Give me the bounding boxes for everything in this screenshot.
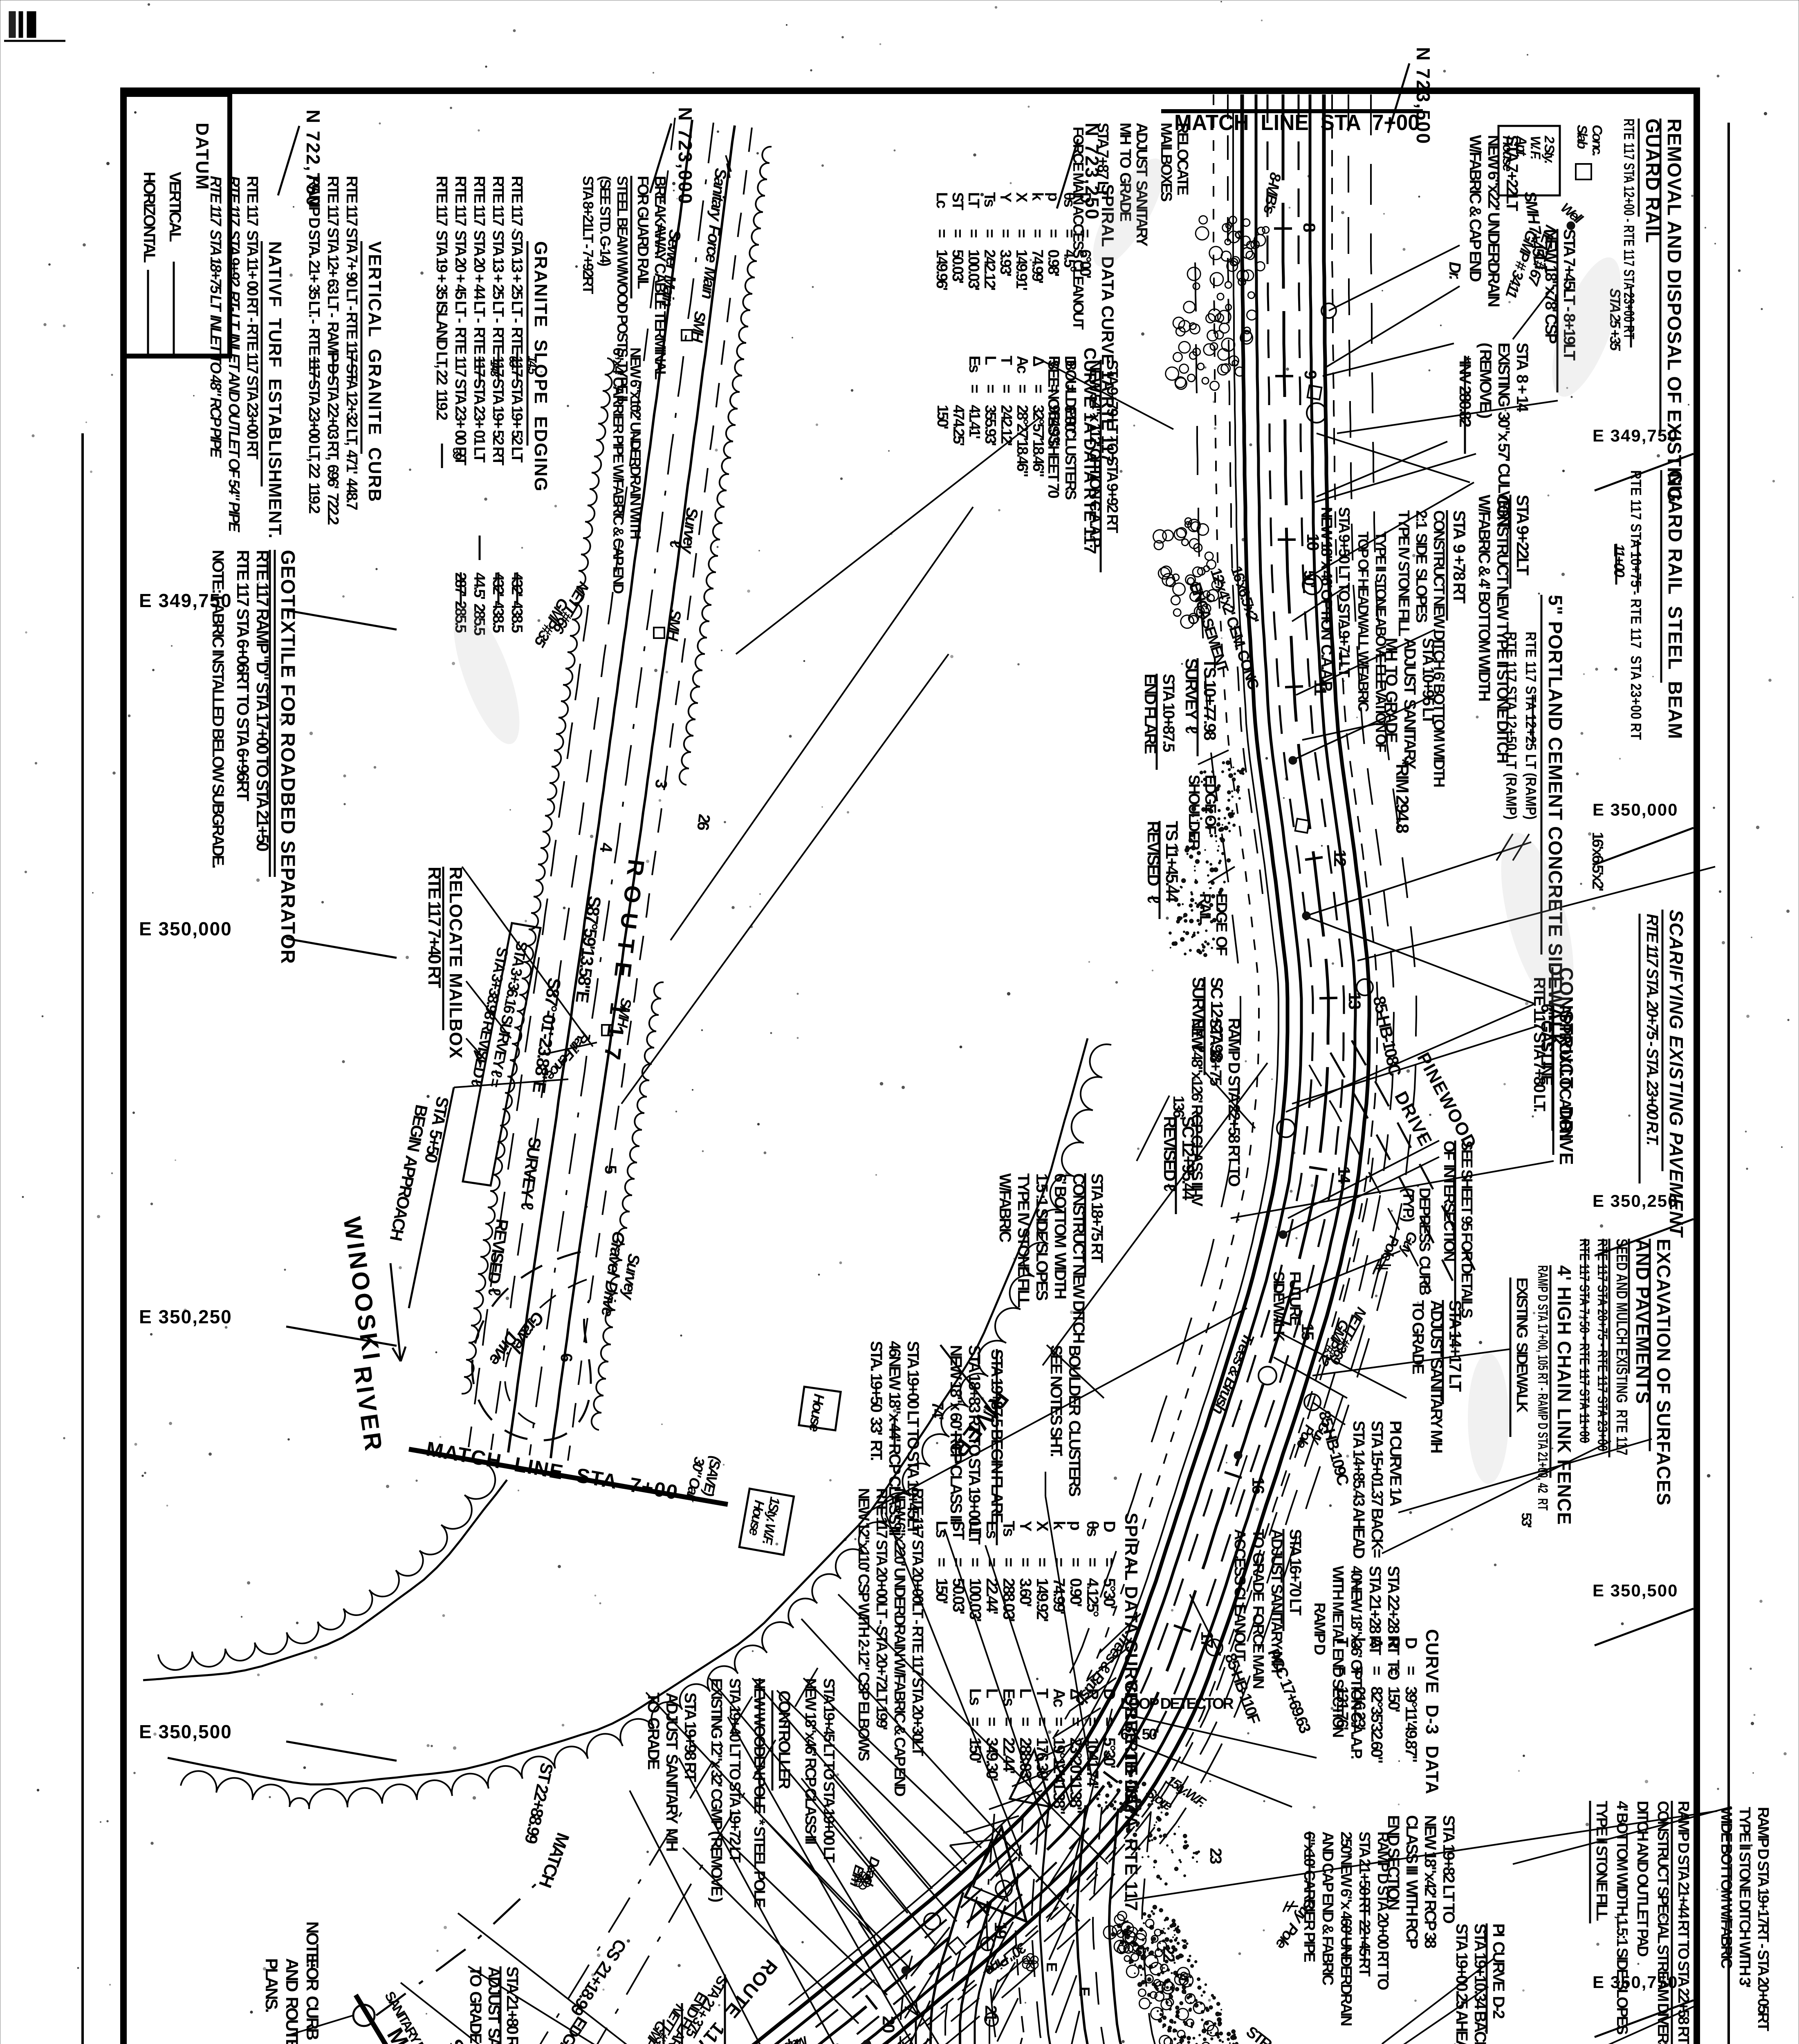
svg-text:6' BOTTOM WIDTH: 6' BOTTOM WIDTH xyxy=(1051,1173,1069,1299)
svg-text:TO GRADE: TO GRADE xyxy=(644,1692,662,1770)
svg-text:STA 8 + 14: STA 8 + 14 xyxy=(1513,343,1531,412)
svg-text:SCARIFYING EXISTING PAVEMENT: SCARIFYING EXISTING PAVEMENT xyxy=(1666,910,1687,1238)
svg-text:p: p xyxy=(1067,1521,1085,1530)
svg-text:MATCH LINE STA 7+00: MATCH LINE STA 7+00 xyxy=(1174,110,1420,135)
svg-text:39°11'49.87": 39°11'49.87" xyxy=(1402,1686,1420,1762)
svg-text:4' HIGH CHAIN LINK FENCE: 4' HIGH CHAIN LINK FENCE xyxy=(1554,1265,1575,1525)
svg-text:STA 19+82 LT TO: STA 19+82 LT TO xyxy=(1440,1815,1458,1923)
svg-text:( REMOVE ): ( REMOVE ) xyxy=(1476,343,1494,418)
svg-text:41.41': 41.41' xyxy=(966,405,983,439)
svg-text:E 350,000: E 350,000 xyxy=(1593,800,1678,819)
svg-text:WITH METAL END SECTION: WITH METAL END SECTION xyxy=(1329,1566,1346,1737)
svg-text:STA 14+17 LT: STA 14+17 LT xyxy=(1446,1300,1465,1392)
svg-text:House: House xyxy=(1500,136,1515,171)
svg-text:STA 18+75 RT: STA 18+75 RT xyxy=(1088,1173,1106,1263)
svg-text:150': 150' xyxy=(966,1737,984,1763)
svg-text:p: p xyxy=(1045,192,1062,201)
svg-text:CONSTRUCT SPECIAL STREAM DIVER: CONSTRUCT SPECIAL STREAM DIVERSION xyxy=(1654,1801,1671,2044)
svg-text:STA 7+87 LT: STA 7+87 LT xyxy=(1094,123,1111,197)
svg-text:149.92': 149.92' xyxy=(1033,1578,1051,1621)
svg-text:CONSTRUCT NEW TYPE II STONE DI: CONSTRUCT NEW TYPE II STONE DITCH xyxy=(1494,495,1512,763)
svg-text:20: 20 xyxy=(879,2016,898,2033)
svg-text:22.44': 22.44' xyxy=(1000,1737,1018,1773)
svg-text:NOTE: FABRIC INSTALLED BELOW S: NOTE: FABRIC INSTALLED BELOW SUBGRADE. xyxy=(209,550,227,868)
svg-text:D: D xyxy=(1402,1637,1420,1649)
svg-text:RELOCATE: RELOCATE xyxy=(1174,123,1191,195)
svg-text:RTE 117 STA 12+25 LT (RAMP): RTE 117 STA 12+25 LT (RAMP) xyxy=(1523,632,1539,820)
svg-text:LOOP DETECTOR: LOOP DETECTOR xyxy=(1120,1695,1234,1712)
svg-text:GEOTEXTILE FOR ROADBED SEPARAT: GEOTEXTILE FOR ROADBED SEPARATOR xyxy=(277,550,298,964)
svg-text:Ts: Ts xyxy=(1000,1521,1018,1536)
svg-text:16'x6.5'x2': 16'x6.5'x2' xyxy=(1589,832,1606,891)
svg-text:=: = xyxy=(983,1717,1001,1726)
svg-text:15: 15 xyxy=(1298,1323,1317,1340)
svg-text:Slab: Slab xyxy=(1574,125,1590,149)
svg-text:STA 8+21LT - 7+92RT: STA 8+21LT - 7+92RT xyxy=(580,176,597,294)
svg-text:=: = xyxy=(1083,1558,1101,1567)
svg-text:ADJUST SANITARY MH: ADJUST SANITARY MH xyxy=(663,1692,681,1851)
svg-text:Es: Es xyxy=(966,356,983,372)
svg-text:E 350,000: E 350,000 xyxy=(139,918,232,939)
svg-text:RAMP D STA. 21+ 35 LT. - RTE: RAMP D STA. 21+ 35 LT. - RTE 117 STA 23+… xyxy=(305,176,323,513)
svg-text:143: 143 xyxy=(488,360,501,377)
svg-text:RTE 117 RAMP "D" STA 17+00 TO: RTE 117 RAMP "D" STA 17+00 TO STA 21+50 xyxy=(253,550,272,851)
svg-text:=: = xyxy=(998,384,1015,393)
svg-text:FOR CURB TIES AT RAMP ISL: FOR CURB TIES AT RAMP ISLANDS xyxy=(303,1958,322,2044)
svg-text:349.30': 349.30' xyxy=(983,1737,1001,1781)
svg-text:6" GAS LINE: 6" GAS LINE xyxy=(1538,1004,1556,1086)
svg-text:ACCESS CLEANOUT: ACCESS CLEANOUT xyxy=(1231,1529,1248,1661)
svg-text:PLANS.: PLANS. xyxy=(262,1958,281,2012)
svg-text:LT: LT xyxy=(965,192,982,208)
svg-text:Ls: Ls xyxy=(966,1688,984,1705)
svg-text:END SECTION: END SECTION xyxy=(1384,1815,1402,1910)
svg-text:SIDEWALK: SIDEWALK xyxy=(1270,1271,1287,1342)
svg-text:W/FABRIC & 4' BOTTOM WIDTH: W/FABRIC & 4' BOTTOM WIDTH xyxy=(1475,495,1493,701)
svg-text:STA 19+00 LT TO STA 19+45LT: STA 19+00 LT TO STA 19+45LT xyxy=(904,1341,922,1535)
svg-text:=: = xyxy=(1402,1666,1420,1675)
svg-text:RTE 117 STA 12+ 63 LT - RAMP: RTE 117 STA 12+ 63 LT - RAMP D STA 22+03… xyxy=(324,176,341,525)
svg-text:STA 9+22LT: STA 9+22LT xyxy=(1513,495,1532,576)
svg-text:53': 53' xyxy=(1519,1513,1534,1528)
svg-text:E: E xyxy=(1076,1987,1093,1996)
svg-text:=: = xyxy=(1014,384,1031,393)
svg-text:RTE 117 STA 20 + 44 LT - RTE: RTE 117 STA 20 + 44 LT - RTE 117 STA 23+… xyxy=(471,176,488,463)
svg-text:END FLARE: END FLARE xyxy=(1141,674,1159,754)
svg-text:VERTICAL: VERTICAL xyxy=(166,172,184,242)
svg-text:14.5: 14.5 xyxy=(525,356,539,375)
svg-text:Apt.: Apt. xyxy=(1514,135,1529,157)
svg-text:100.03': 100.03' xyxy=(965,249,982,290)
svg-text:ADJUST SANITARY MH: ADJUST SANITARY MH xyxy=(1427,1300,1445,1453)
svg-text:*RIM 294.8: *RIM 294.8 xyxy=(1392,758,1412,834)
svg-text:SEE NOTES SHEET 70: SEE NOTES SHEET 70 xyxy=(1045,360,1062,498)
svg-text:RTE 117 STA 10+75 - RTE 117 S: RTE 117 STA 10+75 - RTE 117 STA 23+00 RT xyxy=(1628,470,1644,740)
svg-text:BOULDER CLUSTERS: BOULDER CLUSTERS xyxy=(1062,360,1079,500)
svg-text:9: 9 xyxy=(1301,370,1320,379)
svg-text:Ac: Ac xyxy=(1014,356,1031,374)
svg-text:RTE 117 STA 20 + 45 LT - RTE: RTE 117 STA 20 + 45 LT - RTE 117 STA 23+… xyxy=(452,176,469,466)
svg-text:APPROX. LOCATION: APPROX. LOCATION xyxy=(1556,1004,1574,1141)
svg-text:DITCH AND OUTLET PAD: DITCH AND OUTLET PAD xyxy=(1634,1801,1651,1957)
svg-text:=: = xyxy=(982,384,999,393)
svg-text:FUTURE: FUTURE xyxy=(1286,1271,1303,1326)
svg-text:39: 39 xyxy=(450,448,464,460)
svg-text:W/FABRIC: W/FABRIC xyxy=(996,1173,1014,1242)
svg-text:RAMP D STA 21+44 RT TO STA 22+: RAMP D STA 21+44 RT TO STA 22+58 RT xyxy=(1675,1801,1692,2044)
svg-text:=: = xyxy=(933,1558,951,1567)
svg-text:D: D xyxy=(1100,1521,1118,1532)
svg-text:STA 9+79 LT TO STA 9+92 RT: STA 9+79 LT TO STA 9+92 RT xyxy=(1104,360,1121,533)
svg-text:2 Sty.: 2 Sty. xyxy=(1541,135,1557,163)
svg-text:14: 14 xyxy=(1335,1166,1354,1184)
svg-text:1.5 :1 SIDE SLOPES: 1.5 :1 SIDE SLOPES xyxy=(1033,1173,1051,1300)
svg-text:RTE 117 STA 19 + 35 ISLAND LT: RTE 117 STA 19 + 35 ISLAND LT, 22 119.2 xyxy=(433,176,450,420)
svg-text:SEE SHEET 95 FOR DETAILS: SEE SHEET 95 FOR DETAILS xyxy=(1458,1141,1475,1318)
svg-text:E 350,250: E 350,250 xyxy=(1593,1191,1678,1210)
svg-text:STA 22+28 RT TO: STA 22+28 RT TO xyxy=(1384,1566,1402,1680)
svg-text:TS 10+77.98: TS 10+77.98 xyxy=(1200,658,1220,740)
svg-text:STA 15+01.37 BACK=: STA 15+01.37 BACK= xyxy=(1368,1421,1386,1558)
svg-text:FORCE MAIN ACCESS CLEANOUT: FORCE MAIN ACCESS CLEANOUT xyxy=(1070,127,1087,330)
svg-text:REVISED: REVISED xyxy=(1144,821,1163,886)
svg-text:6: 6 xyxy=(557,1353,575,1362)
svg-text:3.93': 3.93' xyxy=(997,249,1014,276)
svg-text:RTE 117 7+40 RT: RTE 117 7+40 RT xyxy=(424,867,444,988)
svg-text:=: = xyxy=(1029,229,1046,238)
svg-text:ST: ST xyxy=(949,192,966,210)
svg-text:=: = xyxy=(1000,1558,1018,1567)
svg-text:BREAKAWAY CABLE TERMINAL: BREAKAWAY CABLE TERMINAL xyxy=(651,176,668,380)
svg-text:4.125°: 4.125° xyxy=(1083,1578,1101,1617)
svg-text:Lc: Lc xyxy=(933,192,950,208)
svg-text:RTE 117 STA 13 + 25 LT - RTE: RTE 117 STA 13 + 25 LT - RTE 117 STA 19+… xyxy=(489,176,507,466)
svg-text:RAMP D: RAMP D xyxy=(1311,1602,1328,1655)
svg-text:E 350,500: E 350,500 xyxy=(139,1721,232,1742)
svg-text:355.93': 355.93' xyxy=(982,405,999,446)
svg-text:ℓ: ℓ xyxy=(1144,895,1163,903)
svg-text:EXISTING 12"x 32' CGMP ( REMOV: EXISTING 12"x 32' CGMP ( REMOVE ) xyxy=(708,1678,725,1902)
svg-text:PI CURVE 1A: PI CURVE 1A xyxy=(1386,1421,1404,1506)
svg-text:TO GRADE FORCE MAIN: TO GRADE FORCE MAIN xyxy=(1249,1529,1267,1688)
svg-text:STA 19+10.34 BACK=: STA 19+10.34 BACK= xyxy=(1471,1923,1489,2044)
svg-text:SEED AND MULCH EXISTING RTE 1: SEED AND MULCH EXISTING RTE 117 xyxy=(1613,1239,1630,1455)
svg-text:82°35'32.60": 82°35'32.60" xyxy=(1368,1686,1386,1763)
svg-text:NEW 18"x46' RCP CLASS III: NEW 18"x46' RCP CLASS III xyxy=(802,1678,819,1844)
svg-text:FOR GUARD RAIL: FOR GUARD RAIL xyxy=(634,176,651,289)
svg-text:SHOULDER: SHOULDER xyxy=(1185,775,1202,850)
svg-text:STA 21+80 RT: STA 21+80 RT xyxy=(503,1966,521,2044)
svg-text:STA 14+85.43 AHEAD: STA 14+85.43 AHEAD xyxy=(1350,1421,1368,1559)
svg-text:CURVE D-3 DATA: CURVE D-3 DATA xyxy=(1422,1629,1442,1795)
svg-text:RTE 117 STA 11+ 00 RT - RTE 1: RTE 117 STA 11+ 00 RT - RTE 117 STA 23+0… xyxy=(244,176,261,459)
svg-text:REMOVAL AND DISPOSAL OF EXISTI: REMOVAL AND DISPOSAL OF EXISTING xyxy=(1664,119,1685,502)
svg-text:EDGE OF: EDGE OF xyxy=(1213,893,1230,955)
svg-text:5°30': 5°30' xyxy=(1100,1737,1118,1768)
svg-text:GUARD RAIL: GUARD RAIL xyxy=(1642,119,1664,243)
svg-text:150': 150' xyxy=(934,405,951,429)
svg-text:W. F.: W. F. xyxy=(1528,136,1543,159)
svg-text:STA 16+70 LT: STA 16+70 LT xyxy=(1286,1529,1304,1616)
svg-text:NATIVF TURF ESTABLISHMENT.: NATIVF TURF ESTABLISHMENT. xyxy=(265,241,285,539)
svg-text:=: = xyxy=(933,229,950,238)
svg-text:=: = xyxy=(1033,1558,1051,1567)
svg-text:SMH: SMH xyxy=(688,310,709,344)
svg-text:Dr.: Dr. xyxy=(1446,262,1464,279)
svg-text:STA 9 +78 RT: STA 9 +78 RT xyxy=(1450,510,1469,604)
svg-text:19: 19 xyxy=(991,1922,1010,1939)
svg-text:BOULDER CLUSTERS: BOULDER CLUSTERS xyxy=(1065,1345,1083,1497)
svg-text:ℓ: ℓ xyxy=(518,1202,537,1210)
svg-text:PI CURVE D-2: PI CURVE D-2 xyxy=(1489,1923,1507,2019)
svg-text:=: = xyxy=(1016,1558,1034,1567)
svg-text:=: = xyxy=(1030,384,1047,393)
svg-text:ℓ: ℓ xyxy=(485,1288,504,1295)
svg-text:NEW 18"x42' RCP 38: NEW 18"x42' RCP 38 xyxy=(1421,1815,1439,1948)
svg-text:6"x4' CARRIER PIPE W/FABRIC &: 6"x4' CARRIER PIPE W/FABRIC & CAP END xyxy=(610,347,627,594)
svg-text:CLASS III WITH RCP: CLASS III WITH RCP xyxy=(1403,1815,1421,1949)
svg-text:=: = xyxy=(1016,1717,1034,1726)
svg-text:E 350,500: E 350,500 xyxy=(1593,1581,1678,1600)
svg-text:STA 18+83 RT TO STA 19+00 LT: STA 18+83 RT TO STA 19+00 LT xyxy=(965,1345,983,1544)
svg-text:28°27'18.46": 28°27'18.46" xyxy=(1014,405,1031,477)
svg-text:149.91': 149.91' xyxy=(1013,249,1030,290)
svg-text:RTE 117 STA 13 + 25 LT - RTE: RTE 117 STA 13 + 25 LT - RTE 117 STA 19+… xyxy=(508,176,525,463)
svg-text:RTE 117 STA 6+06RT TO STA 6+96: RTE 117 STA 6+06RT TO STA 6+96RT xyxy=(233,550,253,802)
svg-text:2:1 SIDE SLOPES: 2:1 SIDE SLOPES xyxy=(1413,510,1430,623)
svg-text:SURVEY: SURVEY xyxy=(1182,658,1201,720)
svg-text:EXCAVATION OF SURFACES: EXCAVATION OF SURFACES xyxy=(1653,1239,1674,1506)
svg-text:=: = xyxy=(997,229,1014,238)
svg-text:RTE 117 STA. 20+75 - STA. 23+0: RTE 117 STA. 20+75 - STA. 23+00 R.T. xyxy=(1643,914,1661,1145)
svg-text:11+00: 11+00 xyxy=(1611,544,1628,577)
svg-text:74.99': 74.99' xyxy=(1029,249,1046,283)
svg-text:50.03': 50.03' xyxy=(949,1578,967,1614)
svg-text:STA 19+40 LT TO STA 19+72 LT: STA 19+40 LT TO STA 19+72 LT xyxy=(726,1678,743,1862)
svg-text:3.60': 3.60' xyxy=(1016,1578,1034,1607)
svg-text:136': 136' xyxy=(1170,1096,1187,1120)
svg-text:STA 10+87.5: STA 10+87.5 xyxy=(1160,674,1178,752)
svg-text:Ac: Ac xyxy=(1050,1688,1068,1708)
svg-text:=: = xyxy=(981,229,998,238)
svg-text:(SEE STD. G-14): (SEE STD. G-14) xyxy=(597,176,614,266)
svg-text:150': 150' xyxy=(1385,1686,1403,1712)
svg-text:Es: Es xyxy=(1000,1688,1018,1706)
svg-text:STA 10+95 LT: STA 10+95 LT xyxy=(1419,638,1437,724)
svg-text:=: = xyxy=(966,1558,984,1567)
svg-text:Y: Y xyxy=(997,192,1014,202)
svg-text:TYPE IV STONE FILL: TYPE IV STONE FILL xyxy=(1395,510,1412,637)
svg-text:74': 74' xyxy=(929,1401,947,1419)
svg-text:150': 150' xyxy=(933,1578,951,1604)
svg-text:=: = xyxy=(966,384,983,393)
svg-text:=: = xyxy=(1368,1666,1386,1675)
svg-text:TOP OF HEADWALL W/FABRIC: TOP OF HEADWALL W/FABRIC xyxy=(1355,531,1372,712)
svg-text:NEW 18"x78' CSP: NEW 18"x78' CSP xyxy=(1542,229,1560,344)
svg-text:STA 21+28 RT: STA 21+28 RT xyxy=(1366,1566,1384,1655)
svg-text:SMH: SMH xyxy=(664,609,684,642)
svg-text:θs: θs xyxy=(1083,1521,1101,1537)
svg-text:HORIZONTAL: HORIZONTAL xyxy=(140,172,158,263)
svg-text:W/FABRIC & CAP END: W/FABRIC & CAP END xyxy=(1466,135,1484,282)
svg-text:0.98': 0.98' xyxy=(1045,249,1062,276)
svg-text:=: = xyxy=(1100,1558,1118,1567)
svg-text:* STEEL POLE: * STEEL POLE xyxy=(751,1819,768,1907)
svg-text:Conc.: Conc. xyxy=(1589,125,1605,156)
svg-text:12: 12 xyxy=(1330,849,1350,866)
svg-text:=: = xyxy=(1013,229,1030,238)
svg-text:STA 19+98 RT: STA 19+98 RT xyxy=(681,1692,699,1782)
svg-text:=: = xyxy=(949,1558,967,1567)
svg-text:=: = xyxy=(949,229,966,238)
svg-text:DATUM: DATUM xyxy=(192,123,212,191)
svg-text:TO GRADE: TO GRADE xyxy=(467,1966,485,2044)
svg-text:RAMP D STA 22+58 RT TO: RAMP D STA 22+58 RT TO xyxy=(1225,1018,1243,1186)
svg-text:STA 19+45 LT TO STA 19+00 LT: STA 19+45 LT TO STA 19+00 LT xyxy=(820,1678,837,1862)
svg-text:GUARD RAIL STEEL BEAM: GUARD RAIL STEEL BEAM xyxy=(1664,470,1686,739)
svg-text:23: 23 xyxy=(1207,1848,1225,1864)
svg-text:VERTICAL GRANITE CURB: VERTICAL GRANITE CURB xyxy=(365,241,385,502)
svg-text:AND PAVEMENTS: AND PAVEMENTS xyxy=(1632,1239,1653,1404)
svg-text:TYPE II STONE DITCH WITH 3': TYPE II STONE DITCH WITH 3' xyxy=(1736,1807,1753,1988)
svg-text:=: = xyxy=(1050,1558,1068,1567)
svg-text:474.25': 474.25' xyxy=(950,405,967,446)
svg-text:Es: Es xyxy=(983,1521,1001,1539)
svg-text:149.96': 149.96' xyxy=(933,249,950,290)
svg-text:TYPE II STONE FILL: TYPE II STONE FILL xyxy=(1593,1801,1610,1921)
svg-text:STA 18+75: STA 18+75 xyxy=(1207,1018,1225,1086)
svg-text:E: E xyxy=(1043,1962,1060,1972)
svg-text:TYPE IV STONE FILL: TYPE IV STONE FILL xyxy=(1014,1173,1032,1308)
svg-text:63: 63 xyxy=(507,356,520,368)
svg-text:L: L xyxy=(1016,1688,1034,1698)
svg-text:(TYP.): (TYP.) xyxy=(1400,1188,1417,1221)
svg-text:ℓ: ℓ xyxy=(1182,726,1201,733)
svg-text:SEE NOTES SHT.: SEE NOTES SHT. xyxy=(1047,1345,1065,1457)
svg-text:RTE 117 STA 7+ 90 LT - RTE 117: RTE 117 STA 7+ 90 LT - RTE 117 STA 12+32… xyxy=(343,176,360,510)
svg-text:NEW 6"x102' UNDERDRAIN WITH: NEW 6"x102' UNDERDRAIN WITH xyxy=(627,347,644,539)
svg-text:RTE 117 STA 18+75 LT INLET T: RTE 117 STA 18+75 LT INLET TO 48" RCP PI… xyxy=(207,176,224,458)
svg-text:OF INTERSECTION: OF INTERSECTION xyxy=(1440,1141,1458,1261)
svg-text:5°30': 5°30' xyxy=(1100,1578,1118,1609)
svg-text:EXISTING SIDEWALK: EXISTING SIDEWALK xyxy=(1513,1277,1530,1413)
svg-text:0.90': 0.90' xyxy=(1067,1578,1085,1607)
svg-text:=: = xyxy=(1045,229,1062,238)
svg-text:WIDE BOTTOM W/FABRIC: WIDE BOTTOM W/FABRIC xyxy=(1718,1807,1735,1969)
svg-text:16: 16 xyxy=(1249,1477,1268,1494)
svg-text:32°57'18.46": 32°57'18.46" xyxy=(1030,405,1047,477)
svg-text:STA. 19+50 33' RT.: STA. 19+50 33' RT. xyxy=(867,1341,885,1460)
svg-text:RAMP D STA 19+17RT - STA 20+05: RAMP D STA 19+17RT - STA 20+05RT xyxy=(1754,1807,1772,2031)
svg-text:AND CAP END & FABRIC: AND CAP END & FABRIC xyxy=(1319,1831,1336,1986)
svg-text:TO GRADE: TO GRADE xyxy=(1409,1300,1427,1374)
svg-text:242.12': 242.12' xyxy=(981,249,998,290)
svg-text:=: = xyxy=(965,229,982,238)
svg-text:50.03': 50.03' xyxy=(949,249,966,283)
svg-text:REVISED: REVISED xyxy=(1160,1116,1180,1181)
svg-text:6' x 50': 6' x 50' xyxy=(1120,1726,1159,1743)
svg-text:=: = xyxy=(1067,1558,1085,1567)
svg-text:RELOCATE MAILBOX: RELOCATE MAILBOX xyxy=(446,867,466,1059)
